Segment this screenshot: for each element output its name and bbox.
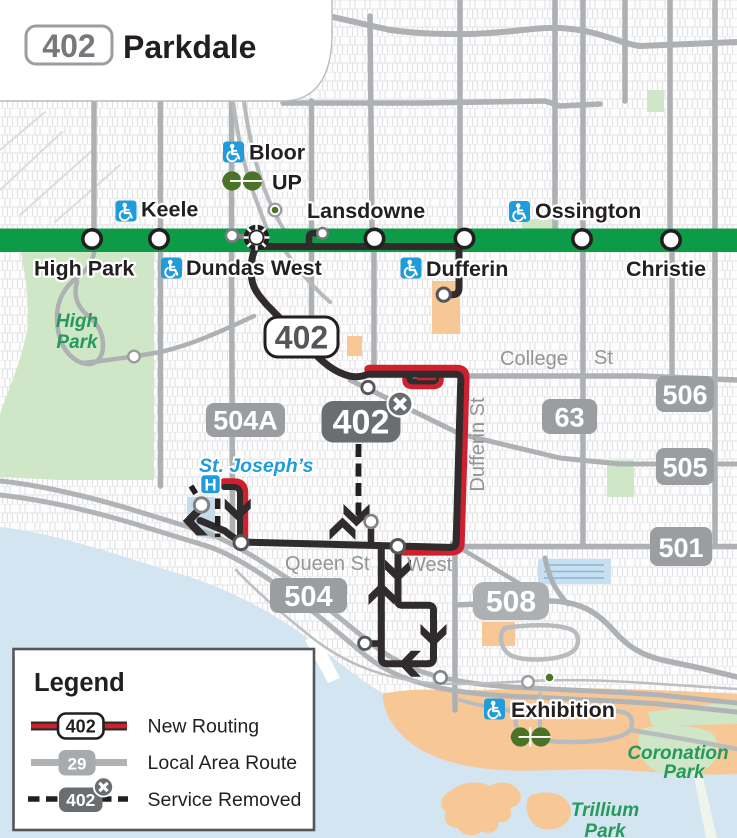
svg-text:506: 506 [662,380,707,410]
svg-text:Local Area Route: Local Area Route [148,752,298,774]
svg-text:Dundas West: Dundas West [186,256,322,280]
svg-text:402: 402 [333,404,390,442]
svg-text:508: 508 [486,586,536,619]
svg-text:402: 402 [42,28,95,64]
svg-text:504: 504 [284,581,332,613]
svg-text:505: 505 [662,453,707,483]
svg-text:New Routing: New Routing [148,716,260,738]
svg-text:402: 402 [275,320,328,356]
svg-text:Exhibition: Exhibition [511,698,615,722]
svg-text:504A: 504A [213,406,278,436]
svg-text:Christie: Christie [626,257,706,281]
svg-text:St: St [594,347,613,369]
svg-text:Parkdale: Parkdale [123,29,256,65]
svg-text:West: West [407,554,453,576]
svg-text:High: High [56,311,98,332]
svg-text:63: 63 [554,403,584,433]
svg-text:Ossington: Ossington [535,199,641,223]
svg-text:Dufferin St: Dufferin St [467,397,489,492]
svg-text:Legend: Legend [34,669,125,697]
svg-text:501: 501 [658,533,703,563]
svg-text:UP: UP [272,171,302,195]
svg-text:Bloor: Bloor [249,141,306,165]
svg-text:H: H [204,476,216,495]
svg-text:402: 402 [66,717,96,737]
svg-text:Park: Park [56,332,99,353]
svg-text:Dufferin: Dufferin [426,257,508,281]
svg-text:Lansdowne: Lansdowne [307,199,425,223]
svg-text:402: 402 [66,790,95,810]
svg-text:29: 29 [68,755,87,774]
svg-text:High Park: High Park [34,257,134,281]
svg-text:College: College [500,348,568,370]
svg-text:Trillium: Trillium [571,800,639,821]
svg-text:Queen St: Queen St [285,553,370,575]
svg-text:Park: Park [584,821,627,838]
svg-text:Coronation: Coronation [627,743,728,764]
svg-text:Keele: Keele [141,198,198,222]
svg-text:Service Removed: Service Removed [148,789,302,811]
svg-text:Park: Park [663,762,706,783]
